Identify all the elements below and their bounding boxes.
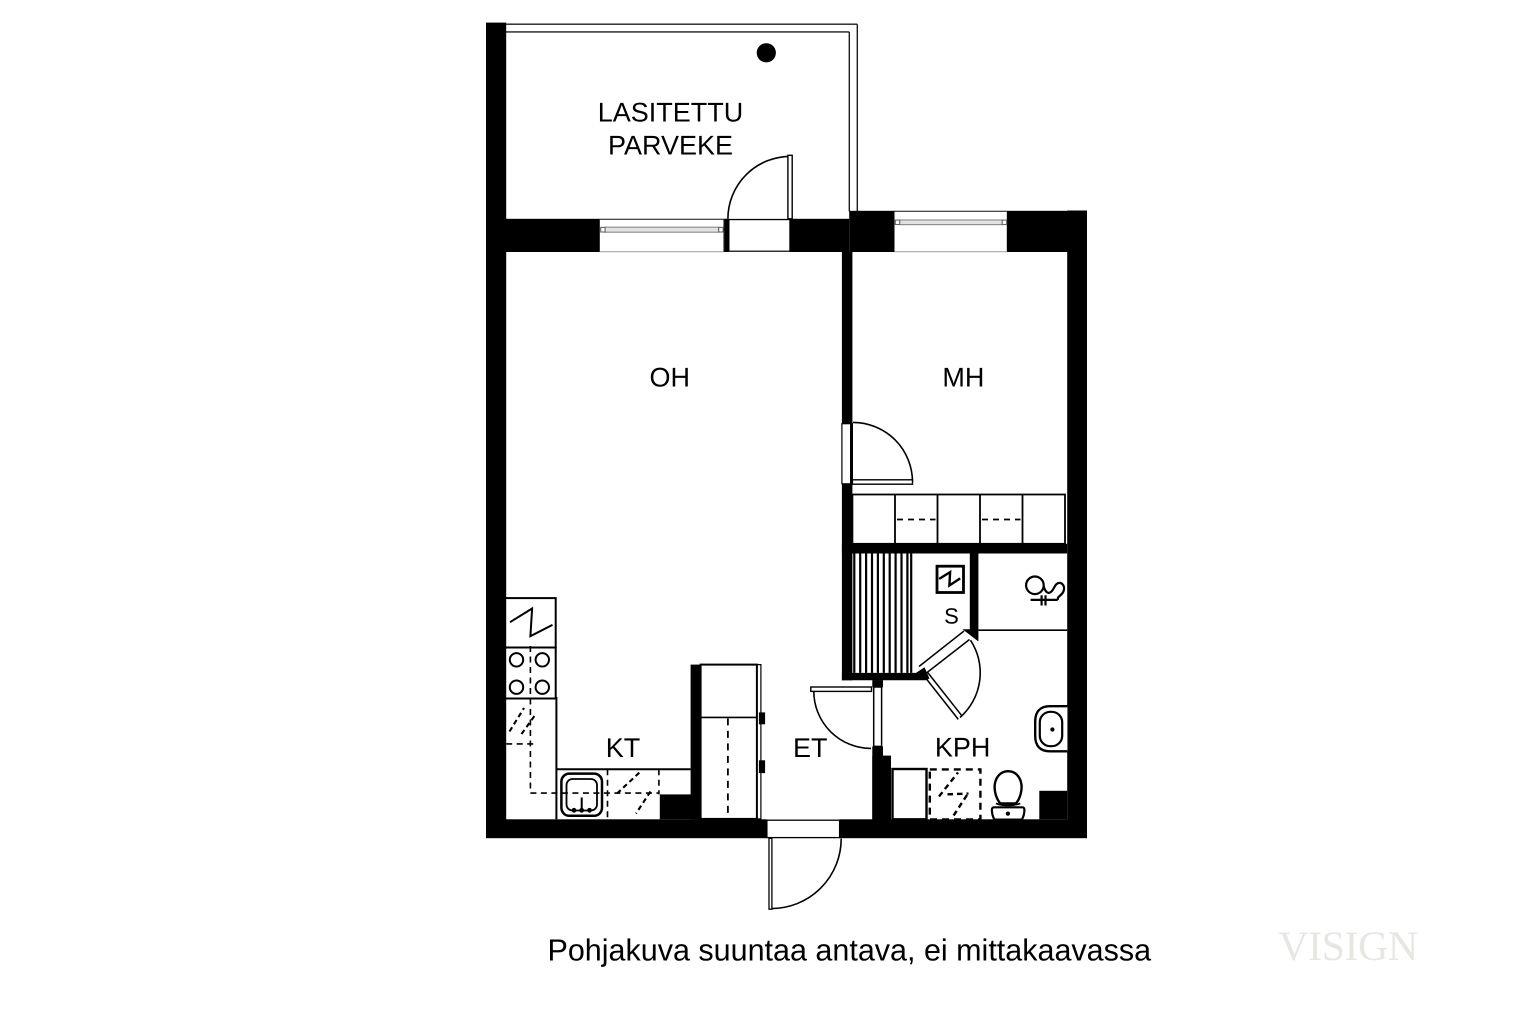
svg-text:Pohjakuva suuntaa antava, ei m: Pohjakuva suuntaa antava, ei mittakaavas… (548, 933, 1152, 967)
svg-text:PARVEKE: PARVEKE (608, 131, 733, 161)
svg-text:KT: KT (606, 733, 641, 763)
svg-text:KPH: KPH (935, 733, 991, 763)
svg-text:S: S (944, 604, 959, 629)
svg-text:VISIGN: VISIGN (1278, 924, 1417, 970)
svg-text:LASITETTU: LASITETTU (598, 98, 744, 128)
svg-text:MH: MH (942, 363, 984, 393)
svg-text:ET: ET (793, 733, 828, 763)
svg-text:OH: OH (650, 363, 691, 393)
